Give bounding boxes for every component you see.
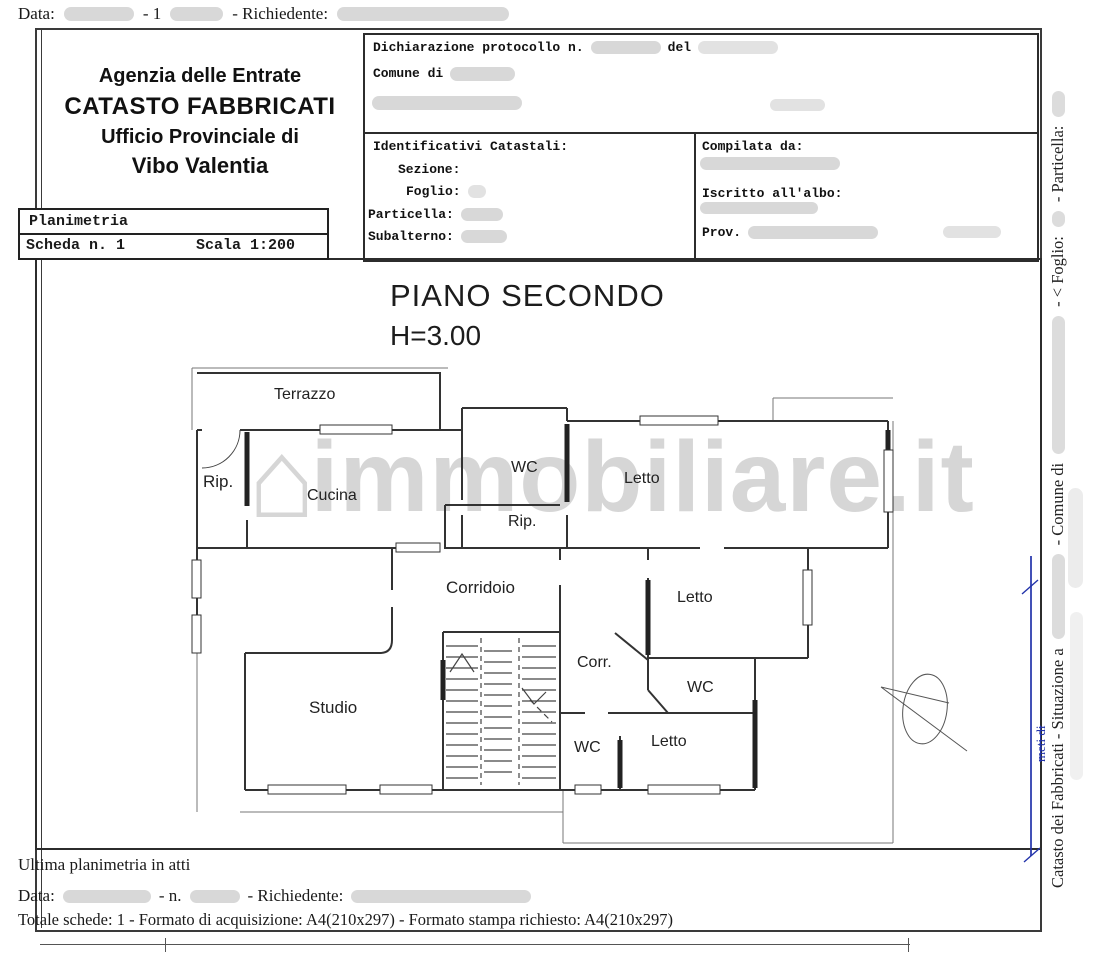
bottom-rule <box>40 944 910 945</box>
prov-row: Prov. <box>702 225 878 240</box>
planimetria-divider <box>20 233 327 235</box>
footer-richiedente-label: - Richiedente: <box>248 886 344 906</box>
redacted-footer-number <box>190 890 240 903</box>
catasto-title: CATASTO FABBRICATI <box>45 90 355 123</box>
redacted-code <box>770 99 825 111</box>
protocol-box: Dichiarazione protocollo n. del Comune d… <box>363 33 1039 262</box>
room-label-studio: Studio <box>309 698 357 718</box>
office-city: Vibo Valentia <box>45 151 355 181</box>
scheda-label: Scheda n. 1 <box>26 237 125 254</box>
redacted-side-foglio <box>1052 211 1065 227</box>
richiedente-label: - Richiedente: <box>232 4 328 24</box>
blue-annotation-line <box>1030 556 1032 856</box>
office-label: Ufficio Provinciale di <box>45 123 355 151</box>
room-label-corridoio: Corridoio <box>446 578 515 598</box>
sezione-row: Sezione: <box>398 162 460 177</box>
agency-name: Agenzia delle Entrate <box>45 62 355 90</box>
protocol-box-divider <box>365 132 1037 134</box>
foglio-label: Foglio: <box>406 184 461 199</box>
albo-row: Iscritto all'albo: <box>702 186 842 201</box>
room-label-terrazzo: Terrazzo <box>274 386 335 404</box>
redacted-footer-richiedente <box>351 890 531 903</box>
redacted-particella <box>461 208 503 221</box>
room-label-letto-3: Letto <box>651 733 687 751</box>
bottom-rule-tick <box>165 938 166 952</box>
room-label-letto-2: Letto <box>677 589 713 607</box>
scala-label: Scala 1:200 <box>196 237 295 254</box>
compilata-title-row: Compilata da: <box>702 139 803 154</box>
agency-header: Agenzia delle Entrate CATASTO FABBRICATI… <box>45 62 355 181</box>
redacted-date <box>64 7 134 21</box>
identificativi-title: Identificativi Catastali: <box>373 139 568 154</box>
subalterno-label: Subalterno: <box>368 229 454 244</box>
particella-label: Particella: <box>368 207 454 222</box>
side-margin-text: Catasto dei Fabbricati - Situazione a - … <box>1048 3 1068 888</box>
identificativi-title-row: Identificativi Catastali: <box>373 139 568 154</box>
side-catasto-label: Catasto dei Fabbricati - Situazione a <box>1048 648 1068 888</box>
foglio-row: Foglio: <box>406 184 486 199</box>
house-icon: ⌂ <box>248 416 317 541</box>
floor-plan-frame <box>35 258 1042 850</box>
redacted-side-situazione <box>1052 554 1065 639</box>
redacted-footer-date <box>63 890 151 903</box>
redacted-protocol-date <box>698 41 778 54</box>
room-label-rip-2: Rip. <box>508 513 536 531</box>
dichiarazione-label: Dichiarazione protocollo n. <box>373 40 584 55</box>
redacted-side-particella <box>1052 91 1065 117</box>
scanned-cadastral-document: { "document": { "top_line": { "data_labe… <box>0 0 1100 961</box>
particella-row: Particella: <box>368 207 503 222</box>
del-label: del <box>668 40 691 55</box>
room-label-letto-1: Letto <box>624 470 660 488</box>
redacted-foglio <box>468 185 486 198</box>
redacted-comune <box>450 67 515 81</box>
room-label-wc-3: WC <box>574 739 601 757</box>
totale-schede-line: Totale schede: 1 - Formato di acquisizio… <box>18 910 673 930</box>
subalterno-row: Subalterno: <box>368 229 507 244</box>
separator-text: - 1 <box>143 4 161 24</box>
data-label: Data: <box>18 4 55 24</box>
redacted-address <box>372 96 522 110</box>
sezione-label: Sezione: <box>398 162 460 177</box>
redacted-protocol-number <box>591 41 661 54</box>
planimetria-title: Planimetria <box>29 213 128 230</box>
redacted-albo <box>700 202 818 214</box>
protocol-box-column-divider <box>694 132 696 260</box>
side-comune-label: - Comune di <box>1048 463 1068 546</box>
redacted-subalterno <box>461 230 507 243</box>
room-label-cucina: Cucina <box>307 487 357 505</box>
bottom-rule-tick <box>908 938 909 952</box>
albo-label: Iscritto all'albo: <box>702 186 842 201</box>
redacted-side-value <box>1068 488 1083 588</box>
comune-row: Comune di <box>373 66 515 81</box>
redacted-prov-code <box>943 226 1001 238</box>
room-label-wc-2: WC <box>687 679 714 697</box>
comune-label: Comune di <box>373 66 443 81</box>
ultima-planimetria-note: Ultima planimetria in atti <box>18 855 190 875</box>
redacted-side-value <box>1070 612 1083 780</box>
redacted-prov <box>748 226 878 239</box>
footer-n-label: - n. <box>159 886 182 906</box>
redacted-side-comune <box>1052 316 1065 454</box>
blue-annotation-text: meti di <box>1033 726 1049 762</box>
dichiarazione-row: Dichiarazione protocollo n. del <box>373 40 778 55</box>
floor-height-label: H=3.00 <box>390 320 481 352</box>
redacted-richiedente <box>337 7 509 21</box>
room-label-wc-1: WC <box>511 459 538 477</box>
room-label-rip-1: Rip. <box>203 472 233 492</box>
footer-data-label: Data: <box>18 886 55 906</box>
side-foglio-label: - < Foglio: <box>1048 236 1068 307</box>
side-particella-label: - Particella: <box>1048 126 1068 203</box>
room-label-corr: Corr. <box>577 654 612 672</box>
top-header-line: Data: - 1 - Richiedente: <box>18 4 509 24</box>
redacted-compilata <box>700 157 840 170</box>
prov-label: Prov. <box>702 225 741 240</box>
watermark: ⌂immobiliare.it <box>248 414 975 543</box>
footer-data-line: Data: - n. - Richiedente: <box>18 886 531 906</box>
planimetria-box: Planimetria Scheda n. 1 Scala 1:200 <box>18 208 329 260</box>
redacted-number <box>170 7 223 21</box>
compilata-label: Compilata da: <box>702 139 803 154</box>
floor-title: PIANO SECONDO <box>390 278 665 314</box>
